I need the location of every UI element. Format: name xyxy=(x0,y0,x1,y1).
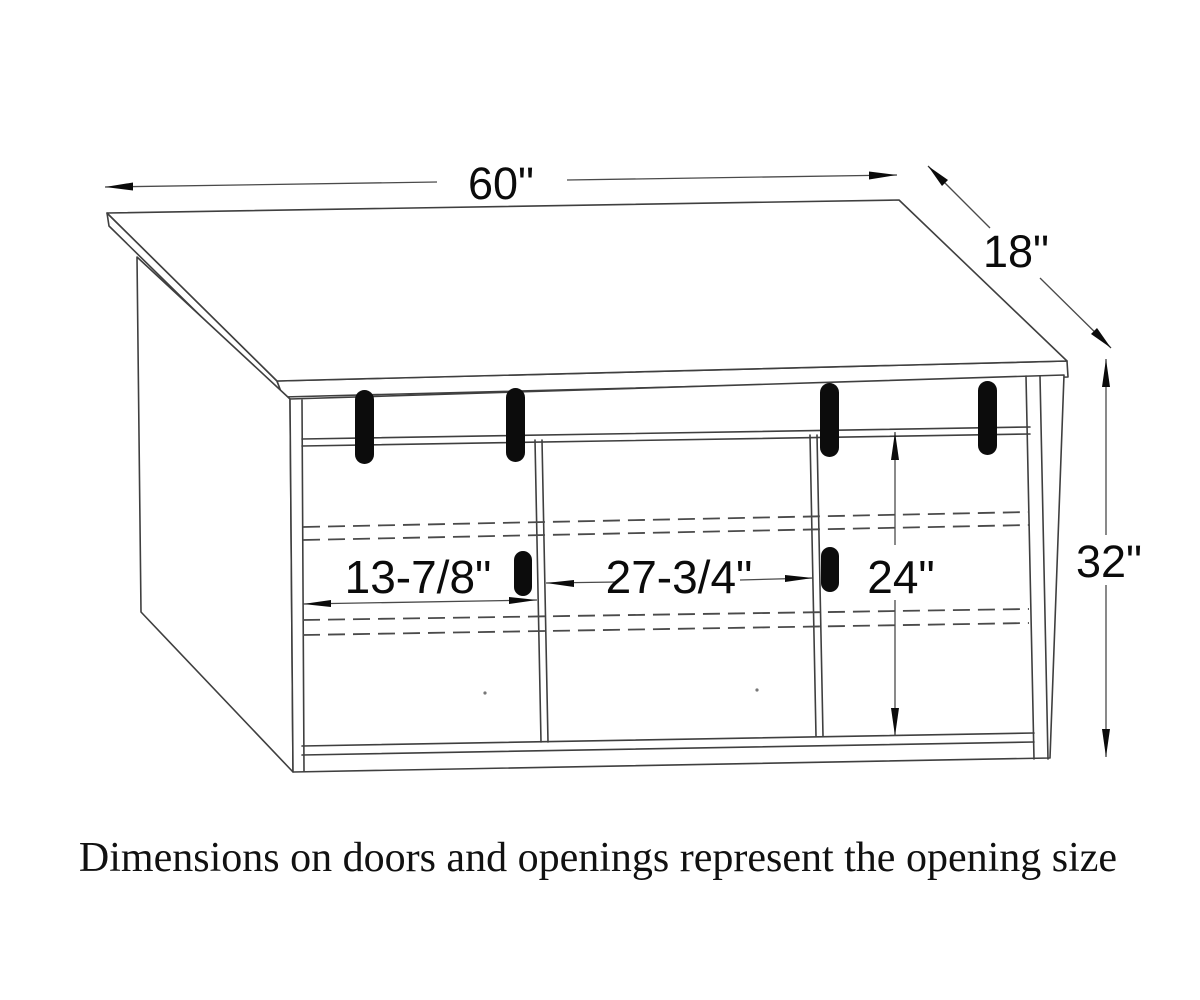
dim-60-label: 60" xyxy=(468,158,534,209)
dim-13-label: 13-7/8" xyxy=(345,551,492,603)
door-hanger-3 xyxy=(820,383,839,457)
door-hanger-1 xyxy=(355,390,374,464)
dim-60-line-left xyxy=(105,182,437,187)
door-hanger-2 xyxy=(506,388,525,462)
left-door-pull xyxy=(514,551,532,596)
technical-drawing: 60" 18" 32" 24" xyxy=(0,0,1200,1000)
dim-18-arrow-upper xyxy=(928,166,948,186)
dim-18-label: 18" xyxy=(983,226,1049,277)
countertop-top-surface xyxy=(107,200,1067,381)
dim-32-label: 32" xyxy=(1076,536,1142,587)
dim-60-arrow-left xyxy=(105,183,133,191)
dim-32-arrow-bottom xyxy=(1102,729,1110,757)
dimension-cabinet-height: 32" xyxy=(1076,359,1142,757)
dim-18-arrow-lower xyxy=(1091,328,1111,348)
speck-right xyxy=(755,688,758,691)
speck-left xyxy=(483,691,486,694)
cabinet-diagram-svg: 60" 18" 32" 24" xyxy=(0,0,1200,1000)
caption: Dimensions on doors and openings represe… xyxy=(79,835,1117,881)
dim-27-label: 27-3/4" xyxy=(606,551,753,603)
dim-60-line-right xyxy=(567,175,897,180)
door-hanger-4 xyxy=(978,381,997,455)
dim-60-arrow-right xyxy=(869,172,897,180)
right-door-pull xyxy=(821,547,839,592)
dim-32-arrow-top xyxy=(1102,359,1110,387)
dim-24-label: 24" xyxy=(867,551,935,603)
